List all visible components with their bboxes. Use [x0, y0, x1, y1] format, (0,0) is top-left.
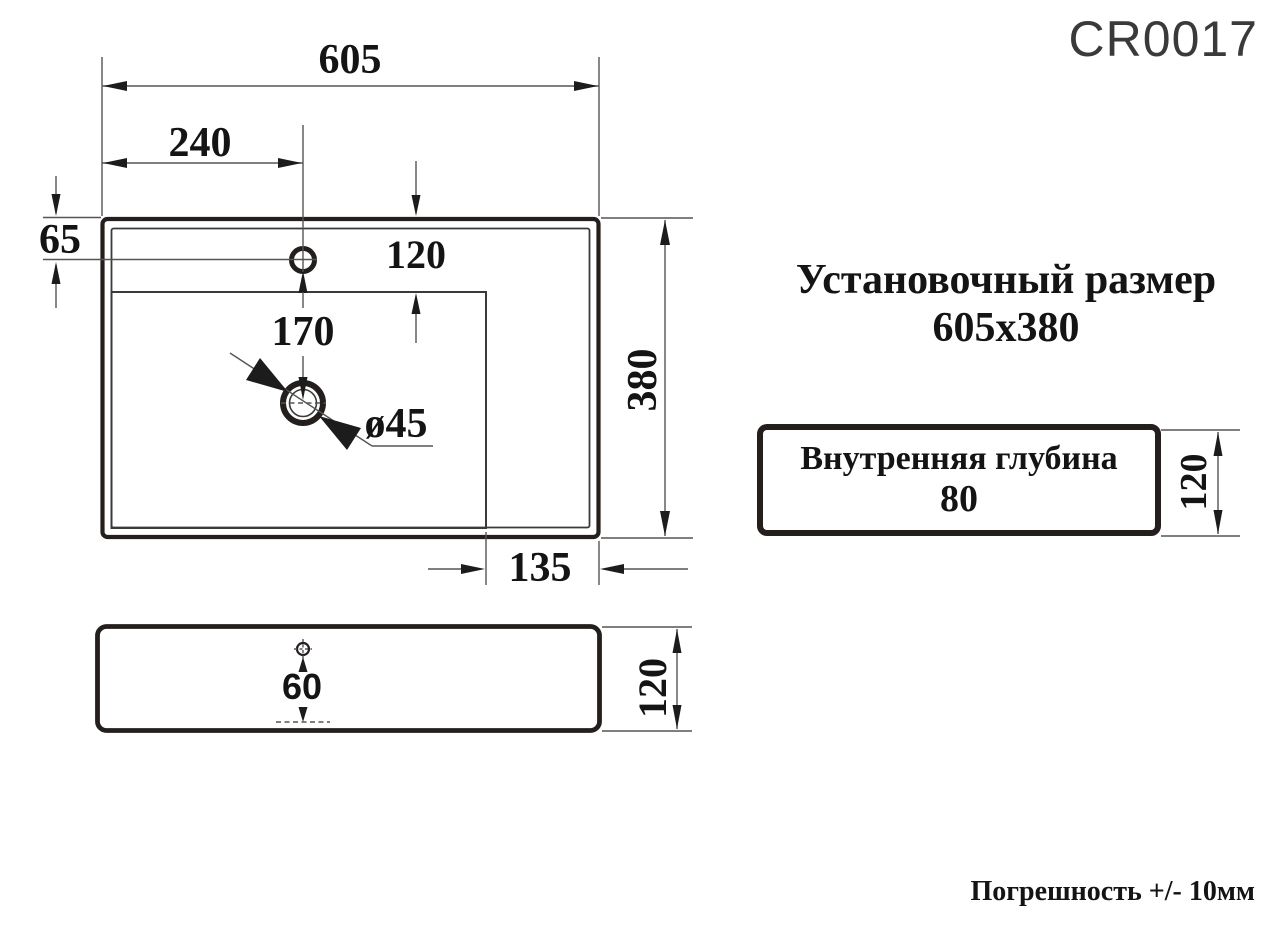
inner-depth-line1: Внутренняя глубина: [800, 440, 1117, 478]
dim-faucet-offset-label: 240: [150, 119, 250, 167]
tolerance-note: Погрешность +/- 10мм: [971, 876, 1255, 908]
side-view-rect: [98, 627, 600, 731]
dim-right-ledge-label: 135: [490, 544, 590, 592]
side-view: [98, 627, 600, 731]
inner-depth-line2: 80: [940, 478, 978, 520]
dim-side-height-label: 120: [623, 628, 683, 748]
install-size-line1: Установочный размер: [763, 256, 1249, 304]
install-size-line2: 605x380: [763, 304, 1249, 352]
install-size-note: Установочный размер 605x380: [763, 256, 1249, 352]
dim-faucet-to-drain-label: 170: [253, 308, 353, 356]
dim-side-hole-label: 60: [262, 666, 342, 708]
dim-depth-box-label: 120: [1164, 422, 1224, 542]
dim-width-label: 605: [300, 36, 400, 84]
plan-outer-rect: [103, 219, 599, 537]
inner-depth-box: Внутренняя глубина 80: [757, 424, 1161, 536]
dim-drain-diameter-label: ø45: [346, 400, 446, 448]
technical-drawing-sheet: CR0017 605 240 65 120 170 ø45 135 380 60…: [0, 0, 1280, 926]
dim-faucet-depth-label: 65: [20, 216, 100, 264]
plan-view: [103, 219, 599, 537]
product-code: CR0017: [1030, 10, 1258, 68]
dim-rim-to-basin-label: 120: [371, 231, 461, 278]
dim-depth-label: 380: [613, 320, 673, 440]
